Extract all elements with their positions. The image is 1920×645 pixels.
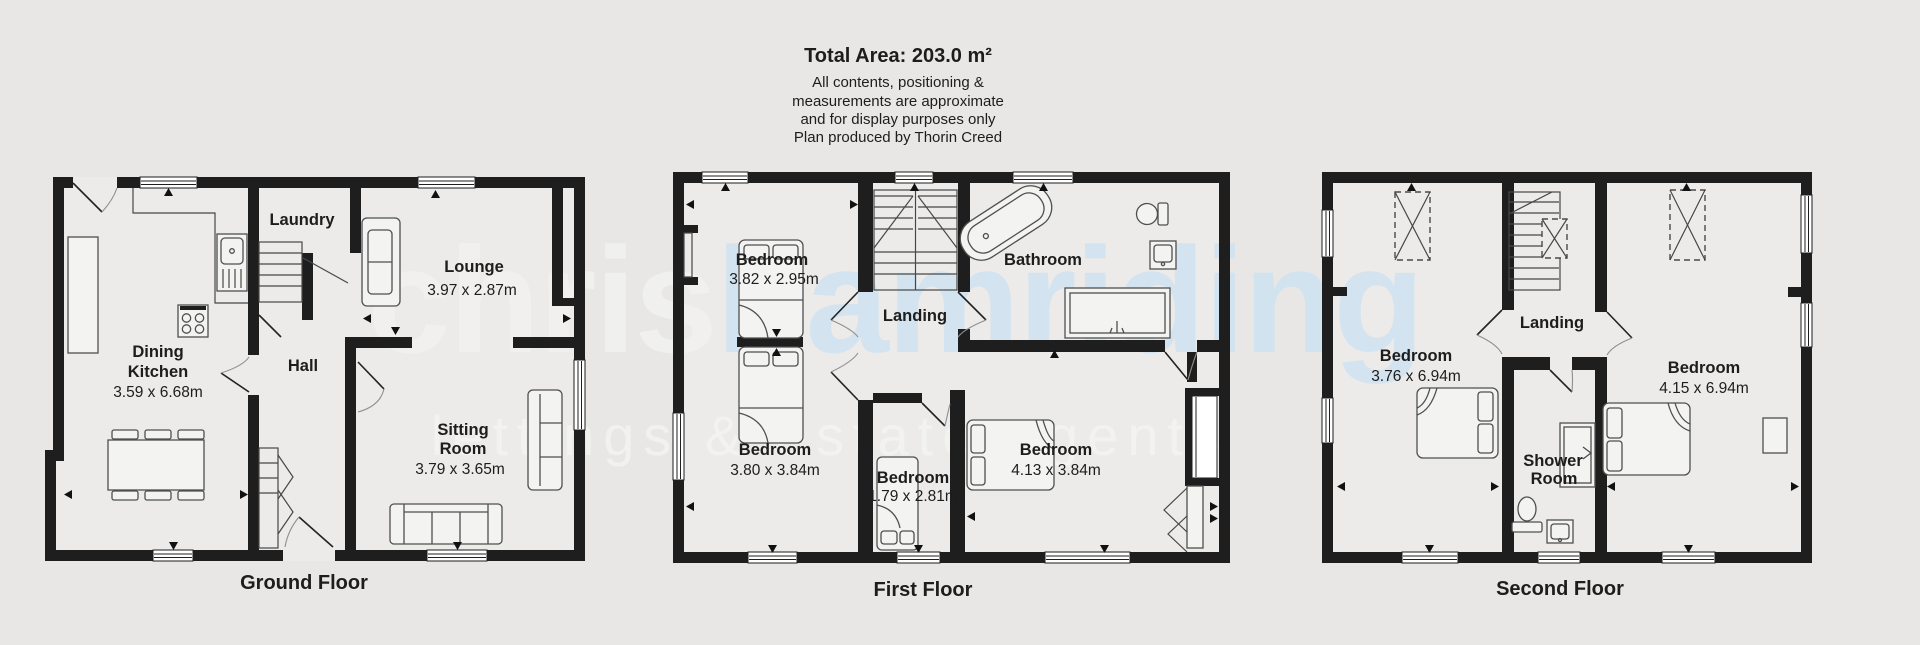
window [1801, 303, 1812, 347]
room-label-landing: Landing [1520, 314, 1584, 332]
room-label-dining-kitchen: Kitchen [128, 363, 189, 381]
disclaimer-line: measurements are approximate [792, 93, 1004, 110]
watermark-brand: chrishamriding [367, 216, 1423, 384]
window [574, 360, 585, 430]
producer-credit-text: Plan produced by Thorin Creed [794, 129, 1002, 146]
disclaimer-line: All contents, positioning & [812, 74, 984, 91]
room-dims-dining-kitchen: 3.59 x 6.68m [113, 384, 203, 401]
room-label-bedroom: Bedroom [1020, 441, 1092, 459]
toilet-icon [1137, 203, 1169, 225]
bed-icon [739, 347, 803, 443]
sofa-icon [362, 218, 400, 306]
skylight-icon [1542, 219, 1567, 258]
window [895, 172, 933, 183]
room-label-bedroom: Bedroom [1668, 359, 1740, 377]
room-label-lounge: Lounge [444, 258, 504, 276]
floor-label-first: First Floor [874, 579, 973, 601]
window [1538, 552, 1580, 563]
room-label-shower-room: Shower [1523, 452, 1583, 470]
window [1192, 396, 1217, 478]
room-label-sitting-room: Sitting [437, 421, 488, 439]
bed-icon [1603, 403, 1690, 475]
room-label-bedroom: Bedroom [877, 469, 949, 487]
room-dims-bedroom: 4.13 x 3.84m [1011, 462, 1101, 479]
floorplan-image: chrishamriding lettings & estate agents [0, 0, 1920, 645]
window [1662, 552, 1715, 563]
room-dims-bedroom: 4.15 x 6.94m [1659, 380, 1749, 397]
room-label-bedroom: Bedroom [736, 251, 808, 269]
window [1801, 195, 1812, 253]
room-label-sitting-room: Room [440, 440, 487, 458]
watermark-brand-first: chris [367, 216, 716, 384]
armchair-icon [528, 390, 562, 490]
room-label-bathroom: Bathroom [1004, 251, 1082, 269]
sink-icon [1150, 241, 1176, 269]
window [1322, 398, 1333, 443]
room-label-bedroom: Bedroom [739, 441, 811, 459]
window [702, 172, 748, 183]
room-dims-lounge: 3.97 x 2.87m [427, 282, 517, 299]
window [153, 550, 193, 561]
room-dims-sitting-room: 3.79 x 3.65m [415, 461, 505, 478]
room-dims-bedroom: 3.80 x 3.84m [730, 462, 820, 479]
hob-icon [178, 305, 208, 337]
header: Total Area: 203.0 m² All contents, posit… [792, 45, 1004, 146]
room-label-bedroom: Bedroom [1380, 347, 1452, 365]
room-dims-bedroom: 1.79 x 2.81m [868, 488, 958, 505]
room-label-laundry: Laundry [269, 211, 335, 229]
room-dims-bedroom: 3.76 x 6.94m [1371, 368, 1461, 385]
window [1013, 172, 1073, 183]
floor-label-ground: Ground Floor [240, 572, 368, 594]
window [897, 552, 940, 563]
total-area-text: Total Area: 203.0 m² [804, 45, 992, 67]
nightstand-icon [1763, 418, 1787, 453]
window [427, 550, 487, 561]
window [1045, 552, 1130, 563]
sink-icon [1547, 520, 1573, 543]
room-label-hall: Hall [288, 357, 318, 375]
disclaimer-line: and for display purposes only [800, 111, 996, 128]
window [140, 177, 197, 188]
window [748, 552, 797, 563]
kitchen-sink-icon [217, 234, 247, 291]
room-label-shower-room: Room [1531, 470, 1578, 488]
window [418, 177, 475, 188]
room-label-landing: Landing [883, 307, 947, 325]
window [1402, 552, 1458, 563]
room-dims-bedroom: 3.82 x 2.95m [729, 271, 819, 288]
shower-icon [1065, 288, 1170, 338]
bed-icon [1417, 388, 1498, 458]
window [1322, 210, 1333, 257]
dining-table-icon [108, 430, 204, 500]
room-label-dining-kitchen: Dining [132, 343, 183, 361]
floorplan-page: chrishamriding lettings & estate agents [0, 0, 1920, 645]
window [673, 413, 684, 480]
floor-label-second: Second Floor [1496, 578, 1624, 600]
sofa-icon [390, 504, 502, 544]
